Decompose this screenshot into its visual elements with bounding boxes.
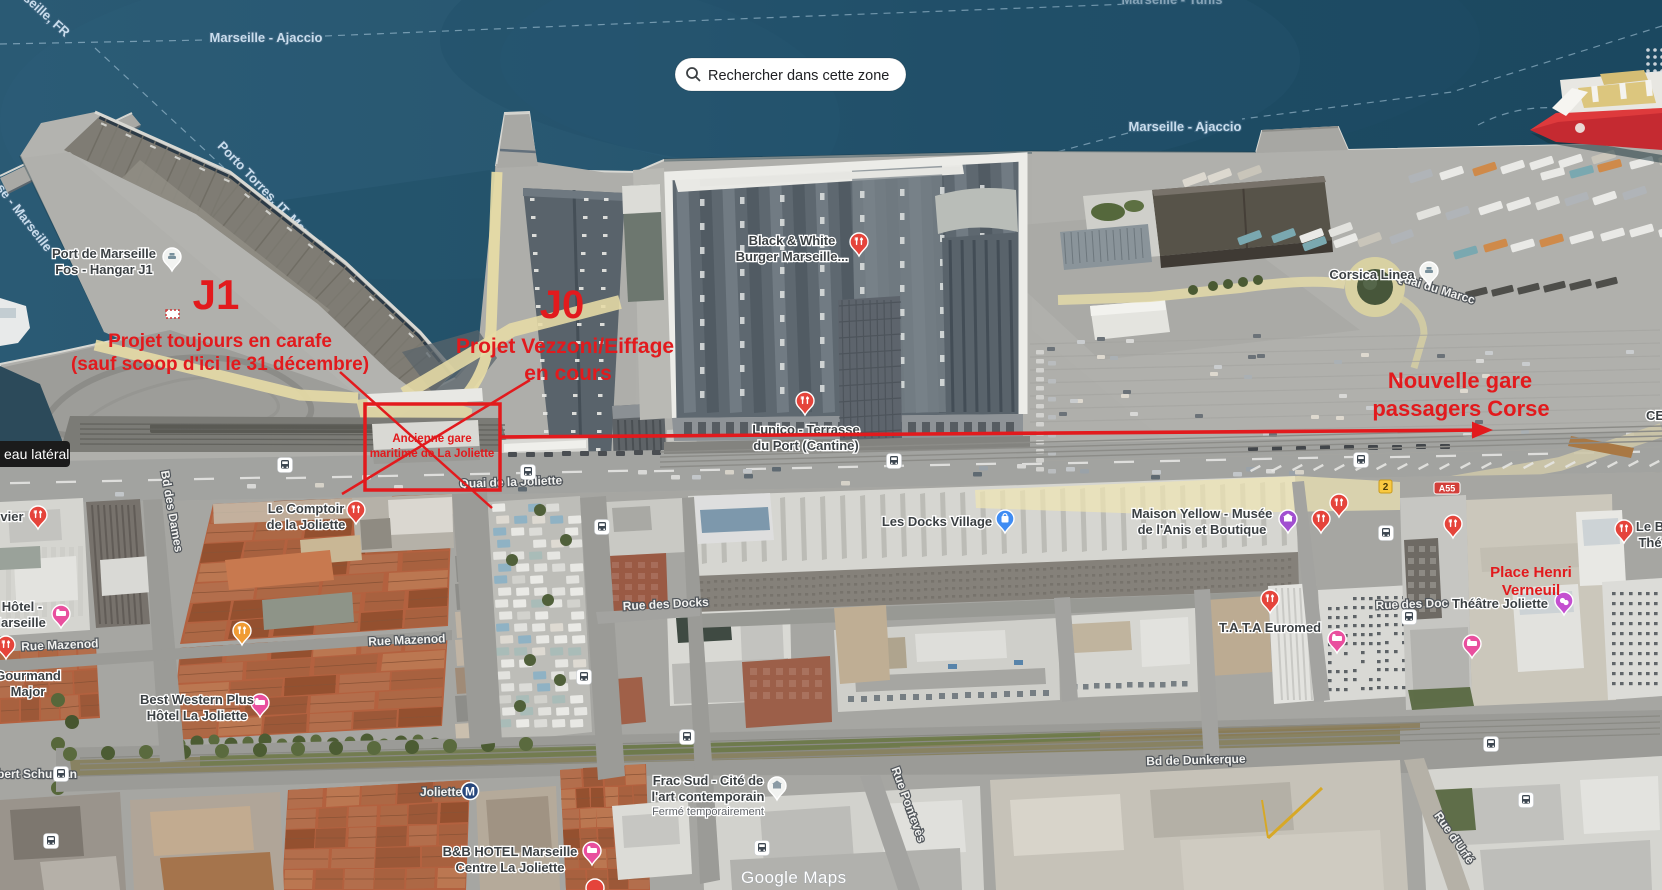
svg-text:Major: Major	[11, 684, 46, 699]
svg-text:Joliette: Joliette	[420, 785, 462, 799]
svg-text:Le Comptoir: Le Comptoir	[268, 501, 345, 516]
svg-text:Gourmand: Gourmand	[0, 668, 61, 683]
svg-text:Centre La Joliette: Centre La Joliette	[455, 860, 564, 875]
svg-text:Corsica Linea: Corsica Linea	[1329, 267, 1415, 282]
svg-text:Projet toujours en carafe: Projet toujours en carafe	[108, 331, 332, 352]
svg-text:(sauf scoop d'ici le 31 décemb: (sauf scoop d'ici le 31 décembre)	[71, 354, 369, 375]
svg-text:Black & White: Black & White	[749, 233, 836, 248]
svg-text:J0: J0	[540, 283, 585, 327]
svg-text:Projet Vezzoni/Eiffage: Projet Vezzoni/Eiffage	[456, 335, 674, 358]
svg-text:Marseille - Ajaccio: Marseille - Ajaccio	[1129, 119, 1242, 134]
svg-text:maritime de La Joliette: maritime de La Joliette	[370, 448, 495, 460]
svg-text:du Port (Cantine): du Port (Cantine)	[753, 438, 858, 453]
svg-text:Port de Marseille: Port de Marseille	[52, 246, 156, 261]
svg-text:J1: J1	[193, 271, 240, 318]
svg-text:CE: CE	[1646, 408, 1662, 423]
svg-text:passagers Corse: passagers Corse	[1372, 396, 1549, 421]
svg-text:Marseille - Ajaccio: Marseille - Ajaccio	[210, 30, 323, 45]
svg-text:eau latéral: eau latéral	[4, 446, 69, 462]
svg-text:Maison Yellow - Musée: Maison Yellow - Musée	[1132, 506, 1273, 521]
svg-text:Best Western Plus: Best Western Plus	[140, 692, 254, 707]
svg-text:Thé: Thé	[1638, 535, 1661, 550]
svg-text:Hôtel -: Hôtel -	[2, 599, 42, 614]
svg-text:Nouvelle gare: Nouvelle gare	[1388, 368, 1532, 393]
svg-text:Bd de Dunkerque: Bd de Dunkerque	[1146, 752, 1246, 769]
svg-text:Le B: Le B	[1636, 519, 1662, 534]
svg-text:Burger Marseille...: Burger Marseille...	[736, 249, 849, 264]
svg-text:Fos - Hangar J1: Fos - Hangar J1	[55, 262, 153, 277]
svg-text:B&B HOTEL Marseille: B&B HOTEL Marseille	[443, 844, 578, 859]
svg-text:Frac Sud - Cité de: Frac Sud - Cité de	[653, 773, 764, 788]
svg-text:A55: A55	[1439, 484, 1456, 494]
svg-text:Les Docks Village: Les Docks Village	[882, 514, 992, 529]
svg-text:T.A.T.A Euromed: T.A.T.A Euromed	[1219, 620, 1321, 635]
svg-text:en cours: en cours	[524, 362, 612, 385]
svg-text:Fermé temporairement: Fermé temporairement	[652, 806, 764, 818]
svg-text:l'art contemporain: l'art contemporain	[652, 789, 765, 804]
svg-text:M: M	[465, 785, 475, 799]
svg-text:Place Henri: Place Henri	[1490, 564, 1572, 581]
svg-text:Marseille - Tunis: Marseille - Tunis	[1122, 0, 1223, 7]
svg-text:Verneuil: Verneuil	[1502, 582, 1560, 599]
svg-text:Google Maps: Google Maps	[741, 868, 847, 887]
svg-text:vier: vier	[0, 509, 23, 524]
svg-text:Ancienne gare: Ancienne gare	[392, 433, 471, 445]
svg-text:Rechercher dans cette zone: Rechercher dans cette zone	[708, 68, 889, 84]
svg-text:Hôtel La Joliette: Hôtel La Joliette	[147, 708, 247, 723]
svg-text:de l'Anis et Boutique: de l'Anis et Boutique	[1138, 522, 1267, 537]
svg-text:2: 2	[1383, 482, 1389, 493]
svg-text:de la Joliette: de la Joliette	[267, 517, 346, 532]
svg-text:Marseille: Marseille	[0, 615, 46, 630]
